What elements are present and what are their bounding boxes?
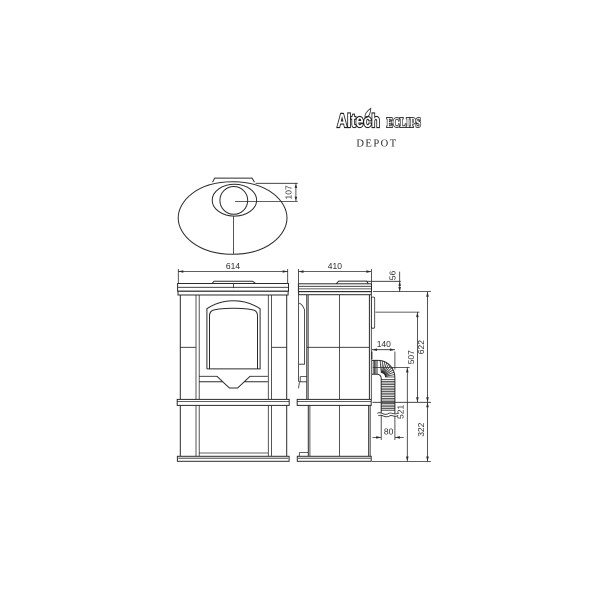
svg-text:140: 140	[377, 339, 391, 349]
svg-text:80: 80	[384, 427, 394, 437]
svg-text:ECLIPS: ECLIPS	[387, 116, 422, 131]
svg-text:410: 410	[328, 261, 342, 271]
svg-text:Altech: Altech	[337, 110, 380, 131]
svg-text:107: 107	[284, 185, 294, 199]
svg-text:614: 614	[226, 261, 240, 271]
svg-text:507: 507	[406, 350, 416, 364]
svg-text:521: 521	[395, 405, 405, 419]
svg-text:322: 322	[416, 422, 426, 436]
svg-text:56: 56	[387, 271, 397, 281]
svg-text:DEPOT: DEPOT	[356, 139, 397, 150]
